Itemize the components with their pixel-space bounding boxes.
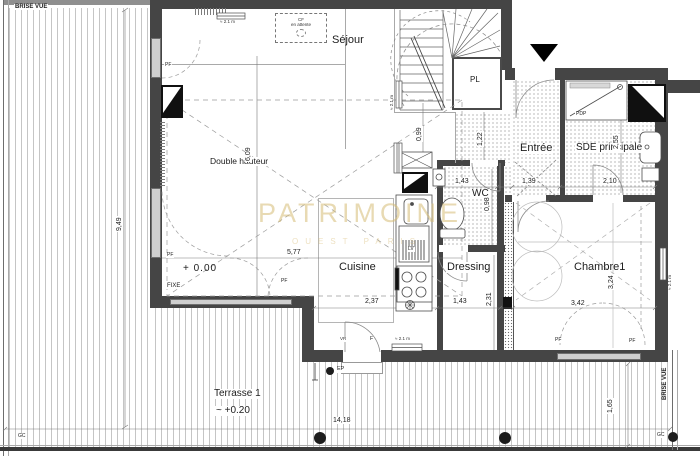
room-label-chambre1: Chambre1	[574, 262, 625, 273]
watermark-title: PATRIMOINE	[258, 198, 462, 229]
dim-wc-width: 1,43	[454, 178, 470, 185]
h21-label-stairs: ≈ 2.1 m	[390, 95, 395, 110]
room-label-double-hauteur: Double hauteur	[209, 157, 269, 166]
floor-plan: Séjour Double hauteur Cuisine Dressing C…	[0, 0, 700, 460]
room-label-pl: PL	[470, 76, 480, 84]
gc-label-left: GC	[17, 434, 27, 439]
plan-linework	[0, 0, 700, 460]
vr-label: VR	[339, 337, 347, 342]
north-arrow	[530, 44, 558, 62]
ep-label: EP	[336, 367, 345, 373]
level-floor: + 0.00	[183, 264, 217, 274]
pf-label-3: PF	[280, 279, 288, 284]
lv-label: LV	[407, 247, 415, 252]
room-label-dressing: Dressing	[446, 262, 491, 273]
dim-sejour-height: 6,09	[245, 146, 252, 162]
dim-terrace-width: 14,18	[332, 417, 352, 424]
f-label: F	[369, 337, 374, 342]
cf-en-attente-box: CF en attente	[275, 13, 327, 43]
room-label-cuisine: Cuisine	[339, 262, 376, 273]
h21-label-bottom: ≈ 2.1 m	[394, 337, 411, 342]
room-label-sejour: Séjour	[332, 35, 364, 46]
cf-circle	[296, 29, 306, 37]
pf-label-2: PF	[166, 253, 174, 258]
dim-chambre-depth: 3,24	[608, 274, 615, 290]
room-label-terrasse: Terrasse 1	[213, 389, 262, 399]
dim-stair-passage: 0,99	[416, 126, 423, 142]
brise-vue-right-label: BRISE VUE	[662, 368, 668, 400]
watermark-subtitle: OUEST PARIS	[292, 237, 422, 246]
staircase	[391, 9, 500, 110]
posts-and-drains	[312, 363, 678, 444]
gc-label-right: GC	[656, 433, 666, 438]
bathroom-fixtures	[433, 81, 661, 238]
pdp-label: PDP	[575, 112, 587, 117]
fixe-label: FIXE	[166, 283, 181, 289]
h21-label-right: ≈ 2.1 m	[668, 275, 673, 290]
room-label-entree: Entrée	[519, 143, 553, 154]
dim-terrace-right: 1,65	[607, 398, 614, 414]
room-label-sde: SDE principale	[575, 143, 643, 153]
dim-wc-depth: 0,98	[484, 196, 491, 212]
dim-dressing-depth: 2,31	[486, 291, 493, 307]
pf-label-4: PF	[554, 338, 562, 343]
dim-cuisine-width: 2,37	[364, 298, 380, 305]
pf-label-1: PF	[164, 63, 172, 68]
level-terrace: ~ +0.20	[215, 406, 251, 416]
dim-entree-depth: 1,22	[477, 131, 484, 147]
dim-sde-height: 2,55	[613, 134, 620, 150]
dim-terrace-height: 9,49	[116, 216, 123, 232]
cf-line2: en attente	[276, 22, 326, 27]
brise-vue-top-label: BRISE VUE	[14, 4, 48, 10]
h21-label-top: ≈ 2.1 m	[219, 20, 236, 25]
dim-chambre-width: 3,42	[570, 300, 586, 307]
pf-label-5: PF	[628, 339, 636, 344]
dim-sde-width: 2,10	[602, 178, 618, 185]
dim-entree-width: 1,39	[521, 178, 537, 185]
dim-sejour-width: 5,77	[286, 249, 302, 256]
dim-dressing-width: 1,43	[452, 298, 468, 305]
